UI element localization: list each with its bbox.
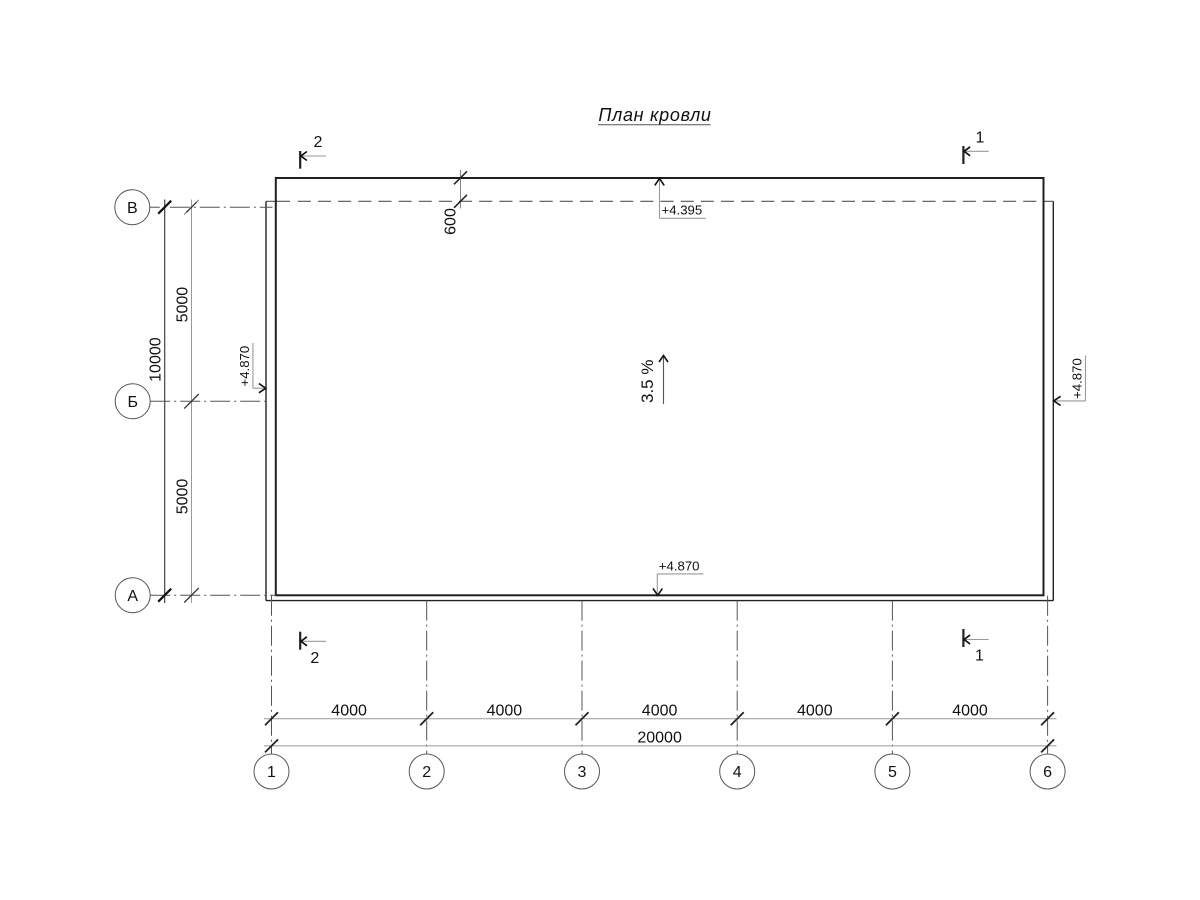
svg-text:+4.870: +4.870: [237, 346, 252, 387]
svg-text:4000: 4000: [642, 702, 678, 719]
svg-text:Б: Б: [127, 394, 138, 411]
svg-text:600: 600: [443, 208, 460, 235]
svg-text:2: 2: [310, 650, 319, 667]
svg-text:+4.395: +4.395: [662, 202, 703, 217]
svg-text:1: 1: [975, 647, 984, 664]
svg-text:2: 2: [422, 764, 431, 781]
svg-text:В: В: [127, 200, 138, 217]
svg-text:1: 1: [976, 129, 985, 146]
svg-text:4: 4: [733, 764, 742, 781]
svg-text:10000: 10000: [148, 337, 165, 382]
svg-text:+4.870: +4.870: [1070, 358, 1085, 399]
svg-text:5000: 5000: [175, 479, 192, 515]
svg-text:2: 2: [314, 134, 323, 151]
svg-text:20000: 20000: [637, 730, 682, 747]
svg-text:+4.870: +4.870: [659, 559, 700, 574]
svg-text:4000: 4000: [952, 702, 988, 719]
svg-text:6: 6: [1043, 764, 1052, 781]
svg-text:План кровли: План кровли: [598, 105, 711, 125]
svg-text:4000: 4000: [487, 702, 523, 719]
svg-text:5: 5: [888, 764, 897, 781]
svg-text:4000: 4000: [331, 702, 367, 719]
svg-text:4000: 4000: [797, 702, 833, 719]
svg-text:5000: 5000: [175, 287, 192, 323]
svg-text:1: 1: [267, 764, 276, 781]
svg-text:3.5 %: 3.5 %: [638, 360, 657, 403]
svg-text:3: 3: [578, 764, 587, 781]
svg-text:А: А: [127, 588, 138, 605]
